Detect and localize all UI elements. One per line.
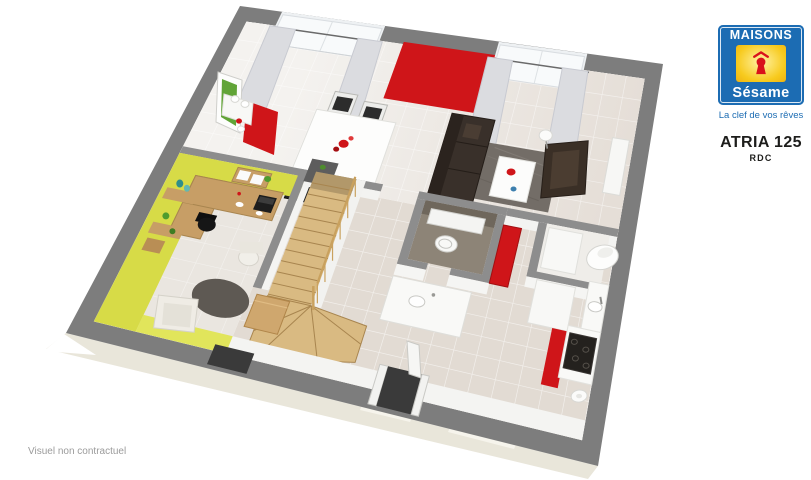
- desk-chair: [198, 218, 216, 232]
- page: MAISONS Sésame La clef de vos rêves ATRI…: [0, 0, 811, 480]
- entry-door: [407, 341, 421, 378]
- floor-vase: [238, 126, 245, 132]
- floor-lamp: [539, 130, 552, 141]
- floor-plan-3d: [0, 0, 811, 480]
- vase: [231, 96, 239, 103]
- plan-model-name: ATRIA 125: [717, 134, 805, 152]
- plant: [264, 176, 271, 182]
- disclaimer-note: Visuel non contractuel: [28, 446, 126, 457]
- keyhole-badge: [736, 45, 786, 82]
- flowers: [236, 118, 242, 123]
- brand-block: MAISONS Sésame La clef de vos rêves ATRI…: [717, 25, 805, 163]
- kitchen-units: [528, 280, 576, 332]
- vase: [241, 101, 249, 108]
- sesame-wordmark: Sésame: [732, 86, 789, 102]
- brand-tagline: La clef de vos rêves: [711, 110, 811, 121]
- plant: [169, 228, 175, 234]
- maisons-wordmark: MAISONS: [730, 29, 793, 42]
- faucet: [432, 293, 436, 297]
- maisons-sesame-logo: MAISONS Sésame: [718, 25, 804, 105]
- plan-level-label: RDC: [717, 153, 805, 163]
- flowers: [507, 168, 516, 175]
- flowers: [339, 140, 349, 148]
- keyhole-icon: [746, 49, 776, 78]
- faucet: [600, 297, 601, 304]
- plant: [162, 212, 169, 219]
